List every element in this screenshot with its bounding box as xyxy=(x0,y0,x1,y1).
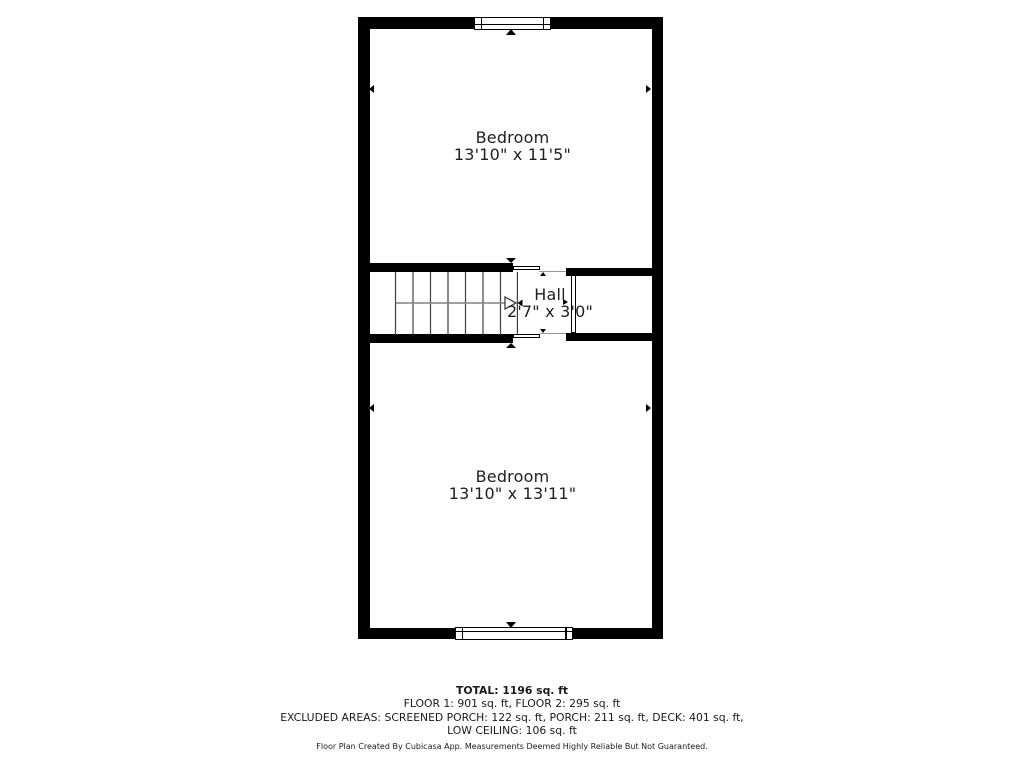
floor-plan-page: Bedroom 13'10" x 11'5" Hall 2'7" x 3'0" … xyxy=(0,0,1024,768)
wall-marker-left-bottom-bedroom xyxy=(369,404,374,412)
window-frame-cap xyxy=(543,18,544,29)
window-frame-cap xyxy=(462,628,463,639)
window-direction-marker-top xyxy=(506,29,516,35)
room-label-top-bedroom: Bedroom 13'10" x 11'5" xyxy=(362,129,663,163)
window-bottom-bedroom xyxy=(455,627,573,640)
hall-door-top xyxy=(513,266,540,271)
door-frame-marker-top-left xyxy=(506,258,516,263)
room-dimensions: 13'10" x 11'5" xyxy=(362,146,663,163)
total-area-text: TOTAL: 1196 sq. ft xyxy=(0,684,1024,697)
room-name: Bedroom xyxy=(362,468,663,485)
wall-divider-bottom-right xyxy=(566,333,664,342)
room-name: Bedroom xyxy=(362,129,663,146)
door-frame-marker-bottom-left xyxy=(506,343,516,348)
window-direction-marker-bottom xyxy=(506,622,516,628)
wall-outer-right xyxy=(652,17,664,639)
window-frame-cap xyxy=(565,628,566,639)
wall-divider-top-left xyxy=(358,263,513,272)
wall-divider-top-right xyxy=(566,268,664,276)
room-dimensions: 13'10" x 13'11" xyxy=(362,485,663,502)
opening-line-bottom xyxy=(540,333,566,334)
wall-marker-left-top-bedroom xyxy=(369,85,374,93)
room-label-hall: Hall 2'7" x 3'0" xyxy=(460,286,640,320)
window-frame-line xyxy=(475,24,550,25)
wall-divider-bottom-left xyxy=(358,334,513,343)
room-name: Hall xyxy=(460,286,640,303)
room-dimensions: 2'7" x 3'0" xyxy=(460,303,640,320)
window-frame-cap xyxy=(481,18,482,29)
wall-marker-right-bottom-bedroom xyxy=(646,404,651,412)
floor-areas-text: FLOOR 1: 901 sq. ft, FLOOR 2: 295 sq. ft xyxy=(0,697,1024,710)
excluded-areas-continued-text: LOW CEILING: 106 sq. ft xyxy=(0,724,1024,737)
wall-marker-right-top-bedroom xyxy=(646,85,651,93)
door-swing-marker-bottom xyxy=(540,329,546,333)
area-summary: TOTAL: 1196 sq. ft FLOOR 1: 901 sq. ft, … xyxy=(0,684,1024,738)
hall-door-bottom xyxy=(513,334,541,339)
disclaimer-text: Floor Plan Created By Cubicasa App. Meas… xyxy=(0,742,1024,752)
excluded-areas-text: EXCLUDED AREAS: SCREENED PORCH: 122 sq. … xyxy=(0,711,1024,724)
room-label-bottom-bedroom: Bedroom 13'10" x 13'11" xyxy=(362,468,663,502)
door-swing-marker-top xyxy=(540,272,546,276)
window-frame-line xyxy=(456,631,572,632)
